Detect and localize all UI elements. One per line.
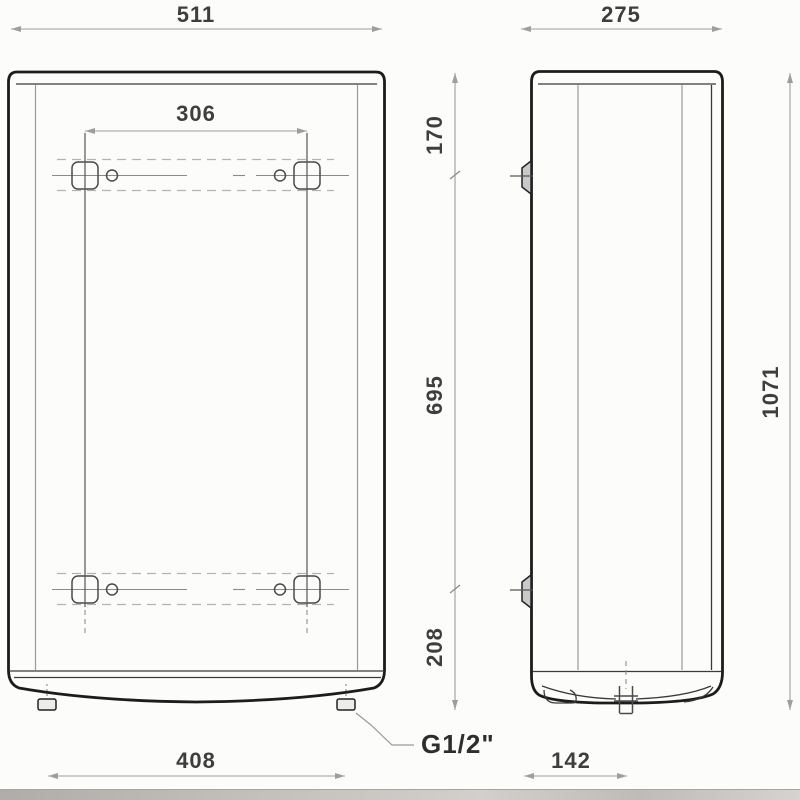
water-connection-right xyxy=(337,699,355,710)
dimension-side-depth: 275 xyxy=(521,2,722,32)
dim-bottom-depth-label: 142 xyxy=(551,748,591,773)
arrowhead-icon xyxy=(521,26,531,32)
dimension-vertical-chain: 170 695 208 xyxy=(422,73,460,710)
wall-bracket-shape xyxy=(522,161,531,194)
arrowhead-icon xyxy=(11,26,21,32)
side-body-outline xyxy=(532,72,723,704)
arrowhead-icon xyxy=(712,26,722,32)
dim-total-height-label: 1071 xyxy=(758,366,783,419)
dim-top-to-bracket-label: 170 xyxy=(422,115,447,155)
dimension-bracket-spacing: 306 xyxy=(85,101,307,134)
thread-callout: G1/2" xyxy=(356,713,495,759)
arrowhead-icon xyxy=(335,773,345,779)
front-top-mounting-rail xyxy=(52,160,349,191)
dimension-total-height: 1071 xyxy=(758,73,793,710)
front-view xyxy=(9,72,385,710)
dim-front-width-label: 511 xyxy=(177,2,216,27)
wall-bracket-bottom xyxy=(510,575,533,608)
side-water-connection xyxy=(614,661,638,714)
drawing-svg: 511 275 306 170 695 208 1071 408 xyxy=(0,0,800,800)
leader-line xyxy=(356,713,414,745)
dim-bracket-spacing-label: 306 xyxy=(176,101,216,126)
dim-side-depth-label: 275 xyxy=(601,2,641,27)
dimension-front-width: 511 xyxy=(11,2,382,32)
dim-bracket-to-bottom-label: 208 xyxy=(422,627,447,667)
arrowhead-icon xyxy=(297,128,307,134)
side-bottom-detail xyxy=(542,661,713,714)
wall-bracket-shape xyxy=(522,575,531,608)
side-view xyxy=(510,72,723,714)
dimension-bottom-depth: 142 xyxy=(524,748,627,779)
front-bottom-mounting-rail xyxy=(52,574,349,605)
thread-size-label: G1/2" xyxy=(421,729,495,759)
arrowhead-icon xyxy=(48,773,58,779)
arrowhead-icon xyxy=(85,128,95,134)
arrowhead-icon xyxy=(372,26,382,32)
arrowhead-icon xyxy=(452,73,458,83)
arrowhead-icon xyxy=(787,73,793,83)
arrowhead-icon xyxy=(787,700,793,710)
bottom-shell-curve-left xyxy=(542,686,616,699)
front-body-outline xyxy=(9,72,385,702)
dimension-connection-spacing: 408 xyxy=(48,748,345,779)
dim-bracket-span-label: 695 xyxy=(422,375,447,415)
dim-connection-spacing-label: 408 xyxy=(176,748,216,773)
arrowhead-icon xyxy=(524,773,534,779)
water-connection-left xyxy=(38,699,56,710)
dimension-drawing: 511 275 306 170 695 208 1071 408 xyxy=(0,0,800,800)
arrowhead-icon xyxy=(617,773,627,779)
photo-edge-strip xyxy=(0,789,800,800)
arrowhead-icon xyxy=(452,700,458,710)
wall-bracket-top xyxy=(510,161,533,194)
